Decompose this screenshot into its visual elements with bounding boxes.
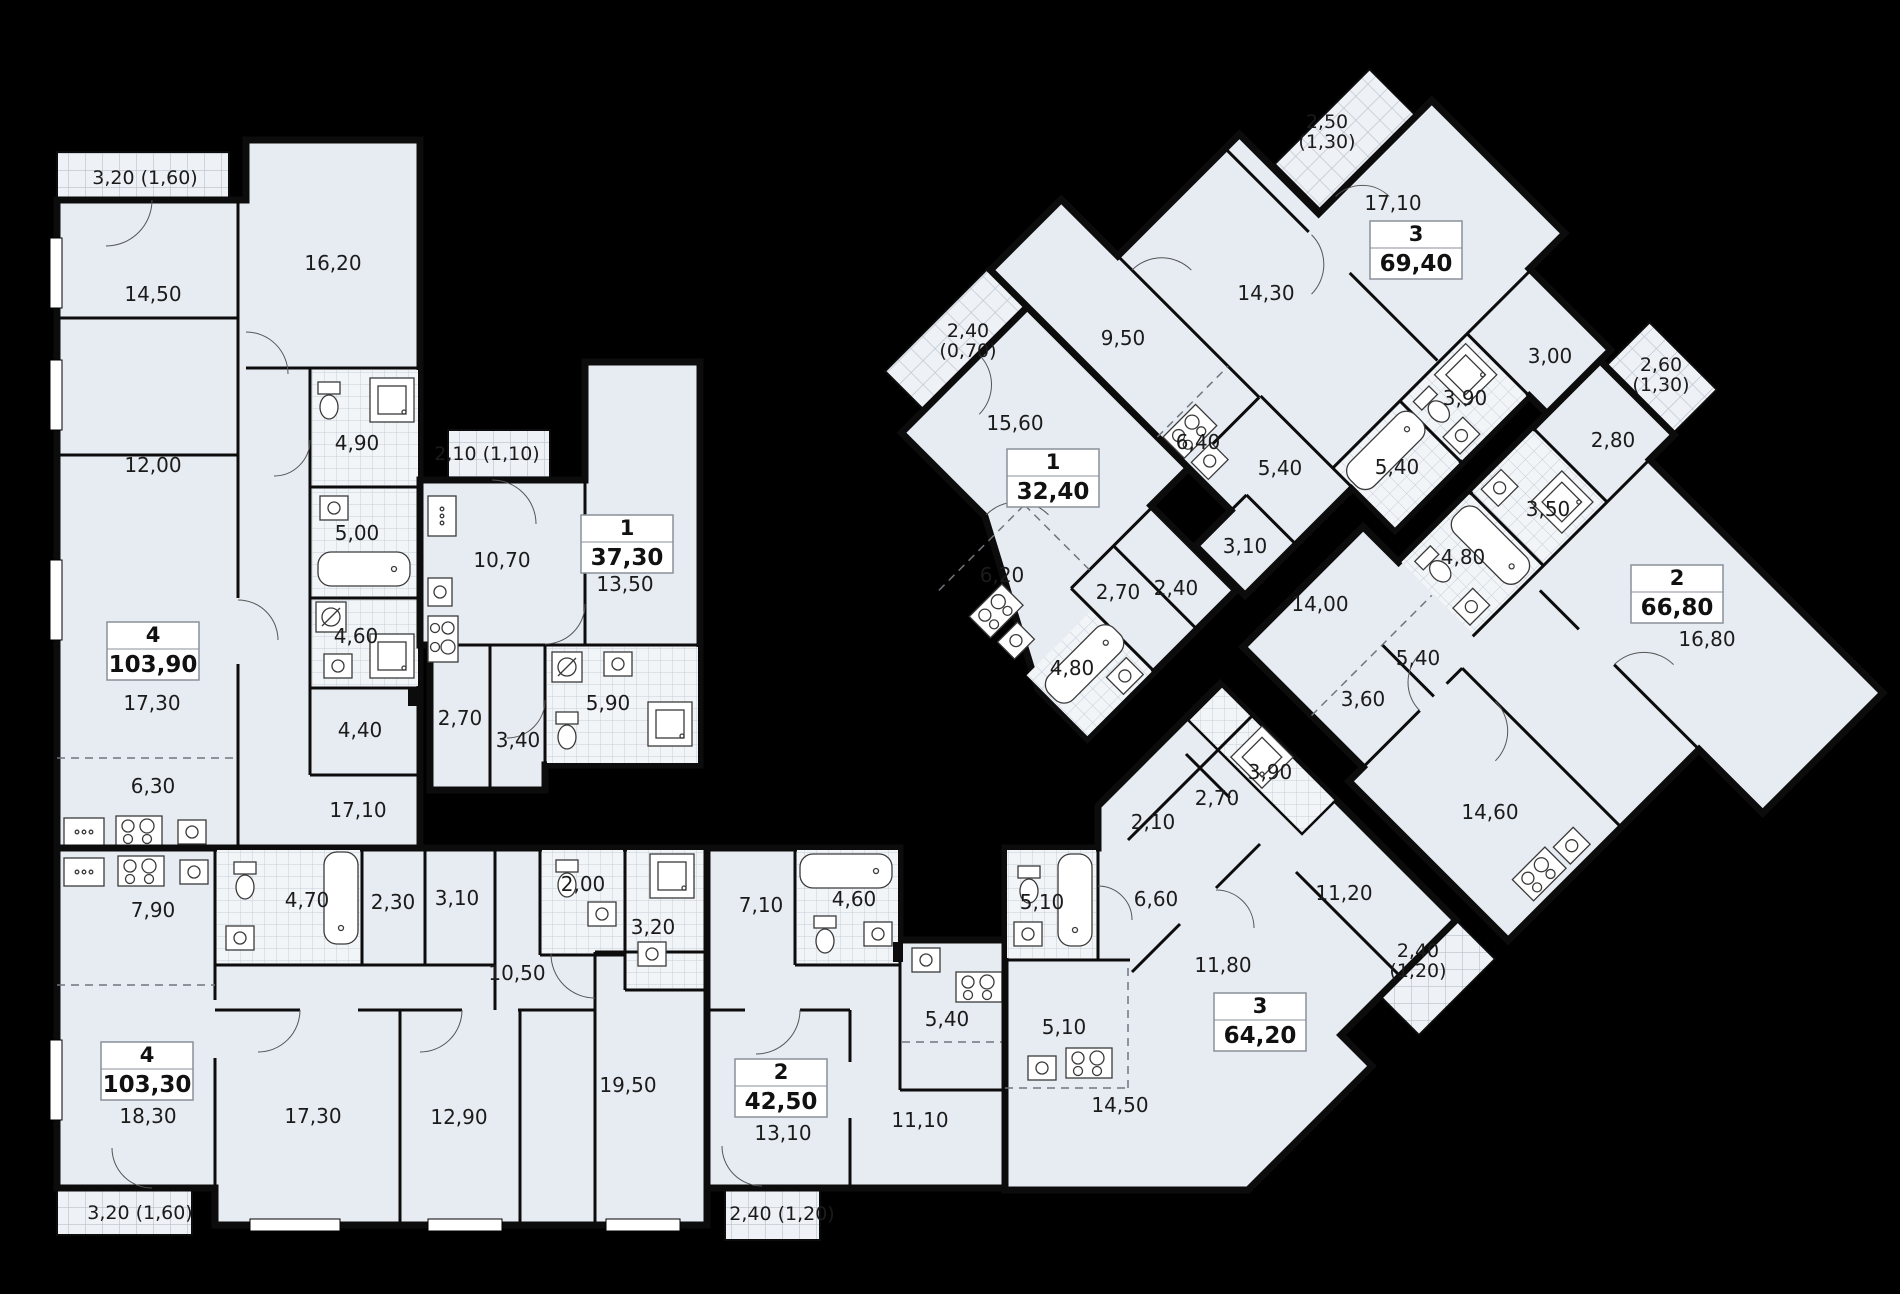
room-area-label: 3,40 (496, 728, 541, 752)
unit-total-area: 42,50 (745, 1089, 818, 1115)
sink-icon (1014, 922, 1042, 946)
room-area-label: 11,80 (1194, 953, 1251, 977)
room-area-label: 17,10 (1364, 191, 1421, 215)
room-area-label: 2,10 (1131, 810, 1176, 834)
room-area-label: 7,10 (739, 893, 784, 917)
balcony-area-label: (0,70) (939, 340, 996, 362)
unit-total-area: 32,40 (1017, 479, 1090, 505)
shower-icon (370, 378, 414, 422)
unit-badge-apt-3-69-40: 369,40 (1370, 221, 1462, 279)
window (606, 1219, 680, 1231)
bathtub-icon (318, 552, 410, 586)
window (50, 560, 62, 640)
room-area-label: 3,00 (1528, 344, 1573, 368)
sink-icon (588, 902, 616, 926)
unit-rooms-count: 1 (1046, 450, 1061, 474)
room-area-label: 17,30 (123, 691, 180, 715)
stove-icon (428, 616, 458, 662)
room-area-label: 6,60 (1134, 887, 1179, 911)
balcony-area-label: (1,30) (1632, 374, 1689, 396)
stove-icon (1066, 1048, 1112, 1078)
room-area-label: 7,90 (131, 898, 176, 922)
room-area-label: 5,40 (925, 1007, 970, 1031)
room-area-label: 17,10 (329, 798, 386, 822)
room-area-label: 2,40 (1154, 576, 1199, 600)
room-area-label: 14,30 (1237, 281, 1294, 305)
unit-total-area: 103,90 (109, 652, 198, 678)
balcony-area-label: 2,40 (1397, 940, 1439, 962)
room-area-label: 2,00 (561, 872, 606, 896)
room-area-label: 2,30 (371, 890, 416, 914)
unit-rooms-count: 3 (1409, 222, 1424, 246)
unit-badge-apt-1-32-40: 132,40 (1007, 449, 1099, 507)
room-area-label: 2,80 (1591, 428, 1636, 452)
balcony-area-label: 2,50 (1306, 111, 1348, 133)
unit-badge-apt-2-42-50: 242,50 (735, 1059, 827, 1117)
unit-badge-apt-1-37-30: 137,30 (581, 515, 673, 573)
sink-icon (864, 922, 892, 946)
fridge-icon (64, 818, 104, 846)
room-area-label: 5,10 (1042, 1015, 1087, 1039)
bathtub-icon (800, 854, 892, 888)
service-shaft (893, 942, 903, 962)
stove-icon (116, 816, 162, 846)
room-area-label: 10,70 (473, 548, 530, 572)
washing-machine-icon (552, 652, 582, 682)
room-area-label: 3,10 (435, 886, 480, 910)
balcony-area-label: 2,60 (1640, 354, 1682, 376)
sink-icon (324, 654, 352, 678)
room-area-label: 3,60 (1341, 687, 1386, 711)
room-area-label: 13,50 (596, 572, 653, 596)
room-area-label: 5,40 (1396, 646, 1441, 670)
room-area-label: 18,30 (119, 1104, 176, 1128)
room-area-label: 12,90 (430, 1105, 487, 1129)
room-area-label: 2,70 (1096, 580, 1141, 604)
floor-plan-page: 14,5016,2012,004,905,004,604,4017,306,30… (0, 0, 1900, 1294)
room-area-label: 5,40 (1258, 456, 1303, 480)
room-area-label: 4,40 (338, 718, 383, 742)
room-area-label: 16,20 (304, 251, 361, 275)
service-shaft (408, 688, 420, 706)
balcony-area-label: 3,20 (1,60) (87, 1202, 192, 1224)
room-area-label: 4,60 (334, 624, 379, 648)
window (50, 1040, 62, 1120)
unit-total-area: 69,40 (1380, 251, 1453, 277)
window (250, 1219, 340, 1231)
room-area-label: 10,50 (488, 961, 545, 985)
room-area-label: 5,10 (1020, 890, 1065, 914)
room-area-label: 4,60 (832, 887, 877, 911)
fridge-icon (428, 496, 456, 536)
room-area-label: 9,50 (1101, 326, 1146, 350)
room-area-label: 3,10 (1223, 534, 1268, 558)
unit-badge-apt-2-66-80: 266,80 (1631, 565, 1723, 623)
room-area-label: 2,70 (438, 706, 483, 730)
toilet-icon (318, 382, 340, 419)
unit-rooms-count: 4 (140, 1043, 155, 1067)
toilet-icon (814, 916, 836, 953)
sink-icon (180, 860, 208, 884)
stove-icon (956, 972, 1002, 1002)
stove-icon (118, 856, 164, 886)
unit-total-area: 64,20 (1224, 1023, 1297, 1049)
window (50, 360, 62, 430)
unit-rooms-count: 2 (1670, 566, 1685, 590)
room-area-label: 2,70 (1195, 786, 1240, 810)
toilet-icon (556, 712, 578, 749)
shower-icon (650, 854, 694, 898)
floor-plan-drawing: 14,5016,2012,004,905,004,604,4017,306,30… (0, 0, 1900, 1294)
unit-rooms-count: 3 (1253, 994, 1268, 1018)
sink-icon (428, 578, 452, 606)
window (50, 238, 62, 308)
room-area-label: 14,60 (1461, 800, 1518, 824)
balcony-area-label: 2,10 (1,10) (434, 443, 539, 465)
room-area-label: 15,60 (986, 411, 1043, 435)
balcony-area-label: 2,40 (947, 320, 989, 342)
room-area-label: 3,50 (1526, 497, 1571, 521)
unit-badge-apt-4-103-30: 4103,30 (101, 1042, 193, 1100)
unit-rooms-count: 1 (620, 516, 635, 540)
unit-badge-apt-4-103-90: 4103,90 (107, 622, 199, 680)
sink-icon (638, 942, 666, 966)
unit-rooms-count: 4 (146, 623, 161, 647)
balcony-area-label: (1,30) (1298, 131, 1355, 153)
room-area-label: 14,00 (1291, 592, 1348, 616)
sink-icon (1028, 1056, 1056, 1080)
room-area-label: 5,40 (1375, 455, 1420, 479)
room-area-label: 5,00 (335, 521, 380, 545)
room-area-label: 17,30 (284, 1104, 341, 1128)
room-area-label: 11,20 (1315, 881, 1372, 905)
window (428, 1219, 502, 1231)
toilet-icon (234, 862, 256, 899)
sink-icon (320, 496, 348, 520)
unit-total-area: 37,30 (591, 545, 664, 571)
shower-icon (648, 702, 692, 746)
unit-total-area: 66,80 (1641, 595, 1714, 621)
room-area-label: 12,00 (124, 453, 181, 477)
unit-total-area: 103,30 (103, 1072, 192, 1098)
room-area-label: 3,90 (1443, 386, 1488, 410)
room-area-label: 4,80 (1441, 545, 1486, 569)
room-area-label: 11,10 (891, 1108, 948, 1132)
room-area-label: 4,70 (285, 888, 330, 912)
room-area-label: 3,20 (631, 915, 676, 939)
room-area-label: 14,50 (1091, 1093, 1148, 1117)
room-area-label: 6,30 (131, 774, 176, 798)
balcony-area-label: 3,20 (1,60) (92, 167, 197, 189)
fridge-icon (64, 858, 104, 886)
balcony-area-label: 2,40 (1,20) (729, 1203, 834, 1225)
room-area-label: 6,20 (980, 563, 1025, 587)
room-area-label: 6,40 (1176, 430, 1221, 454)
sink-icon (226, 926, 254, 950)
unit-rooms-count: 2 (774, 1060, 789, 1084)
room-area-label: 13,10 (754, 1121, 811, 1145)
room-area-label: 16,80 (1678, 627, 1735, 651)
sink-icon (178, 820, 206, 844)
room-area-label: 4,80 (1050, 656, 1095, 680)
unit-badge-apt-3-64-20: 364,20 (1214, 993, 1306, 1051)
balcony-area-label: (1,20) (1389, 960, 1446, 982)
sink-icon (912, 948, 940, 972)
room-area-label: 14,50 (124, 282, 181, 306)
sink-icon (604, 652, 632, 676)
room-area-label: 4,90 (335, 431, 380, 455)
room-area-label: 3,90 (1248, 760, 1293, 784)
room-area-label: 5,90 (586, 691, 631, 715)
room-area-label: 19,50 (599, 1073, 656, 1097)
